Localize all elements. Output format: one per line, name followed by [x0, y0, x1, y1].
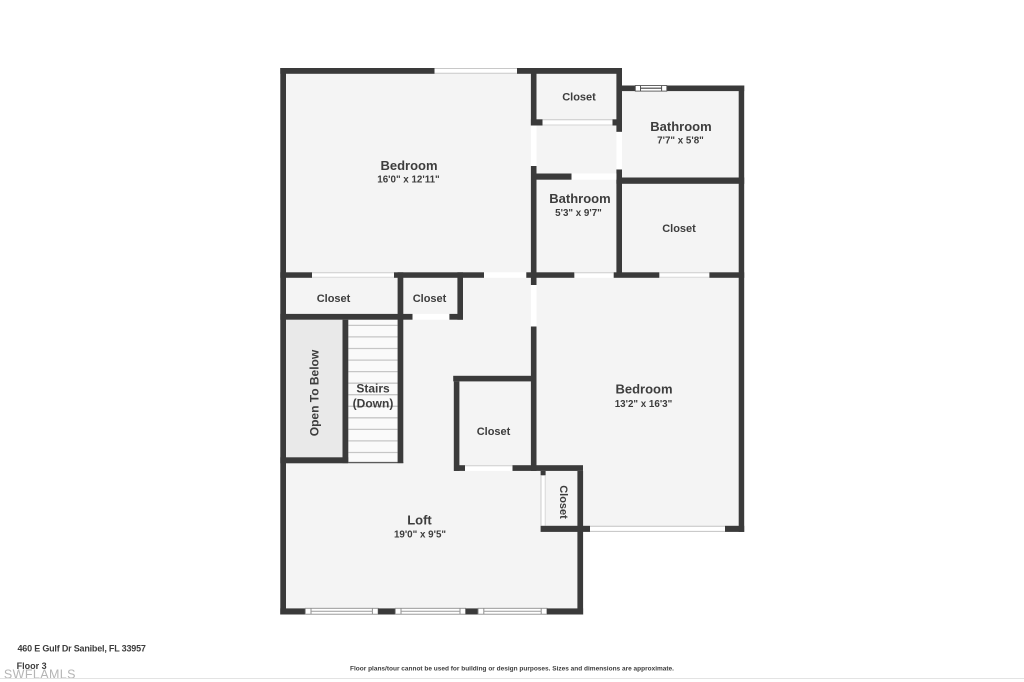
svg-text:Open To Below: Open To Below [308, 349, 322, 436]
svg-text:13'2" x 16'3": 13'2" x 16'3" [615, 399, 673, 410]
svg-text:Bathroom: Bathroom [549, 191, 610, 206]
svg-text:Closet: Closet [317, 293, 351, 305]
svg-text:Closet: Closet [662, 223, 696, 235]
svg-text:16'0" x 12'11": 16'0" x 12'11" [377, 175, 439, 186]
svg-text:Closet: Closet [557, 485, 569, 519]
svg-text:Closet: Closet [477, 426, 511, 438]
svg-text:Closet: Closet [562, 92, 596, 104]
svg-text:Bathroom: Bathroom [650, 119, 711, 134]
svg-text:Bedroom: Bedroom [615, 382, 672, 397]
svg-text:Loft: Loft [407, 513, 432, 528]
svg-text:5'3" x 9'7": 5'3" x 9'7" [555, 208, 602, 219]
svg-text:19'0" x 9'5": 19'0" x 9'5" [394, 530, 446, 541]
svg-text:SWFLAMLS: SWFLAMLS [4, 668, 76, 682]
svg-text:Stairs: Stairs [356, 382, 390, 396]
svg-text:7'7" x 5'8": 7'7" x 5'8" [657, 136, 704, 147]
svg-text:(Down): (Down) [353, 397, 394, 411]
svg-text:Bedroom: Bedroom [380, 158, 437, 173]
svg-text:460 E Gulf Dr Sanibel, FL 3395: 460 E Gulf Dr Sanibel, FL 33957 [18, 644, 146, 654]
svg-text:Closet: Closet [413, 293, 447, 305]
svg-text:Floor plans/tour cannot be use: Floor plans/tour cannot be used for buil… [350, 666, 674, 673]
